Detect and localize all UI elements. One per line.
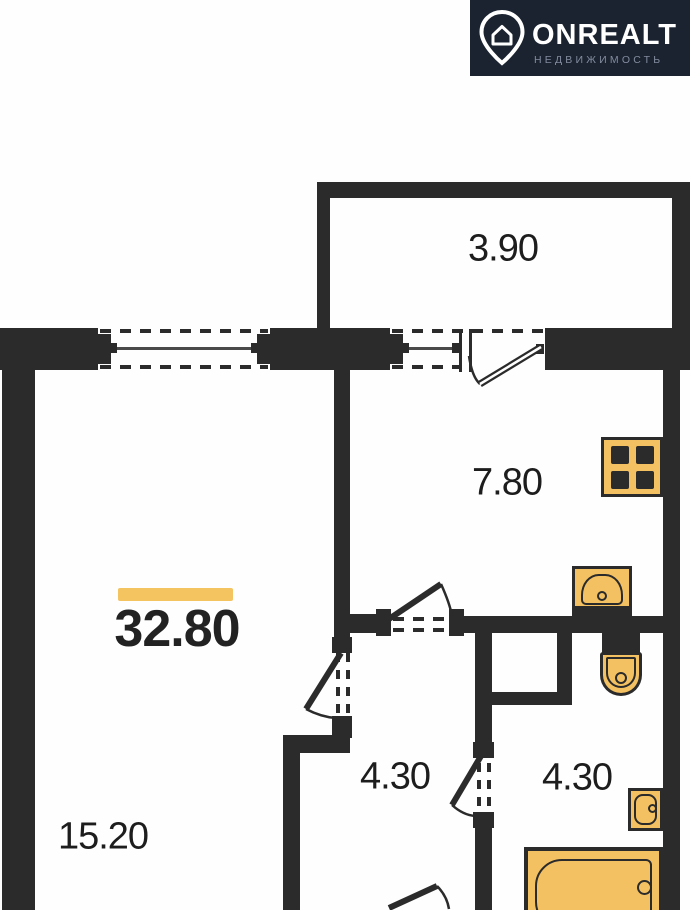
onrealt-logo: ONREALT НЕДВИЖИМОСТЬ	[470, 0, 690, 76]
bathroom-area-label: 4.30	[542, 757, 612, 800]
living-room-area-label: 15.20	[58, 816, 148, 859]
bath-door-opening-dash-left	[477, 746, 481, 822]
bathtub	[524, 847, 663, 910]
wall-living-right	[283, 753, 300, 910]
window-living-pane	[110, 347, 258, 350]
washbasin	[628, 788, 663, 831]
logo-brand-text: ONREALT	[532, 19, 677, 52]
window-living-nub-left	[110, 343, 117, 353]
window-kitchen-dash-top	[392, 329, 544, 333]
balcony-area-label: 3.90	[468, 228, 538, 271]
stove	[601, 437, 663, 497]
bathtub-drain	[637, 880, 652, 895]
kitchen-door	[386, 584, 452, 621]
window-mullion-left-edge	[459, 329, 462, 372]
window-mullion-right-edge	[469, 329, 472, 372]
wall-hall-top-right	[462, 616, 680, 633]
wall-outer-right	[663, 370, 680, 910]
hallway-area-label: 4.30	[360, 756, 430, 799]
wall-living-door-jamb-top	[332, 637, 352, 653]
wall-bath-left-upper	[475, 633, 492, 745]
kitchen-sink-base	[572, 606, 632, 618]
living-door-opening-dash-right	[346, 653, 350, 717]
logo-pin-icon	[478, 9, 526, 67]
kitchen-door-opening-dash-top	[393, 617, 449, 621]
entrance-door	[389, 886, 449, 909]
living-door-opening-dash-left	[336, 653, 340, 717]
bath-door-opening-dash-right	[487, 746, 491, 822]
wall-kitchen-door-jamb-left	[376, 609, 391, 636]
wall-shaft-bottom	[492, 692, 572, 705]
window-living-dash-bottom	[100, 365, 268, 369]
wall-living-kitchen-divider	[334, 370, 350, 652]
window-living-dash-top	[100, 329, 268, 333]
wall-hall-top-left	[350, 614, 379, 633]
logo-tagline-text: НЕДВИЖИМОСТЬ	[534, 54, 663, 66]
wall-balcony-right	[672, 196, 690, 330]
toilet-drain	[615, 672, 627, 684]
wall-outer-left	[2, 370, 35, 910]
stove-burner	[636, 446, 654, 464]
wall-bath-left-lower	[475, 826, 492, 910]
kitchen-door-opening-dash-bottom	[393, 628, 449, 632]
window-kitchen-nub-left	[402, 343, 409, 353]
toilet-tank	[602, 633, 640, 654]
wall-north-right	[545, 328, 690, 370]
kitchen-area-label: 7.80	[472, 462, 542, 505]
toilet-bowl	[600, 652, 642, 696]
washbasin-drain	[648, 804, 657, 813]
wall-balcony-top	[317, 182, 690, 198]
total-area-label: 32.80	[114, 599, 239, 659]
wall-north-mid	[270, 328, 390, 370]
window-kitchen-cap-left	[389, 334, 403, 364]
window-living-nub-right	[251, 343, 258, 353]
balcony-door	[469, 347, 541, 384]
wall-balcony-left	[317, 196, 330, 330]
window-living-cap-right	[257, 334, 271, 364]
wall-north-left	[0, 328, 98, 370]
kitchen-sink-drain	[597, 591, 607, 601]
stove-burner	[636, 471, 654, 489]
balcony-door-hinge-nub	[536, 344, 544, 354]
window-kitchen-dash-bottom	[392, 365, 462, 369]
stove-burner	[611, 446, 629, 464]
window-living-cap-left	[97, 334, 111, 364]
bathtub-basin	[535, 859, 652, 910]
wall-living-jog	[283, 735, 350, 753]
floor-plan-image: 3.90 7.80 4.30 4.30 15.20 32.80 ONREALT …	[0, 0, 690, 910]
stove-burner	[611, 471, 629, 489]
